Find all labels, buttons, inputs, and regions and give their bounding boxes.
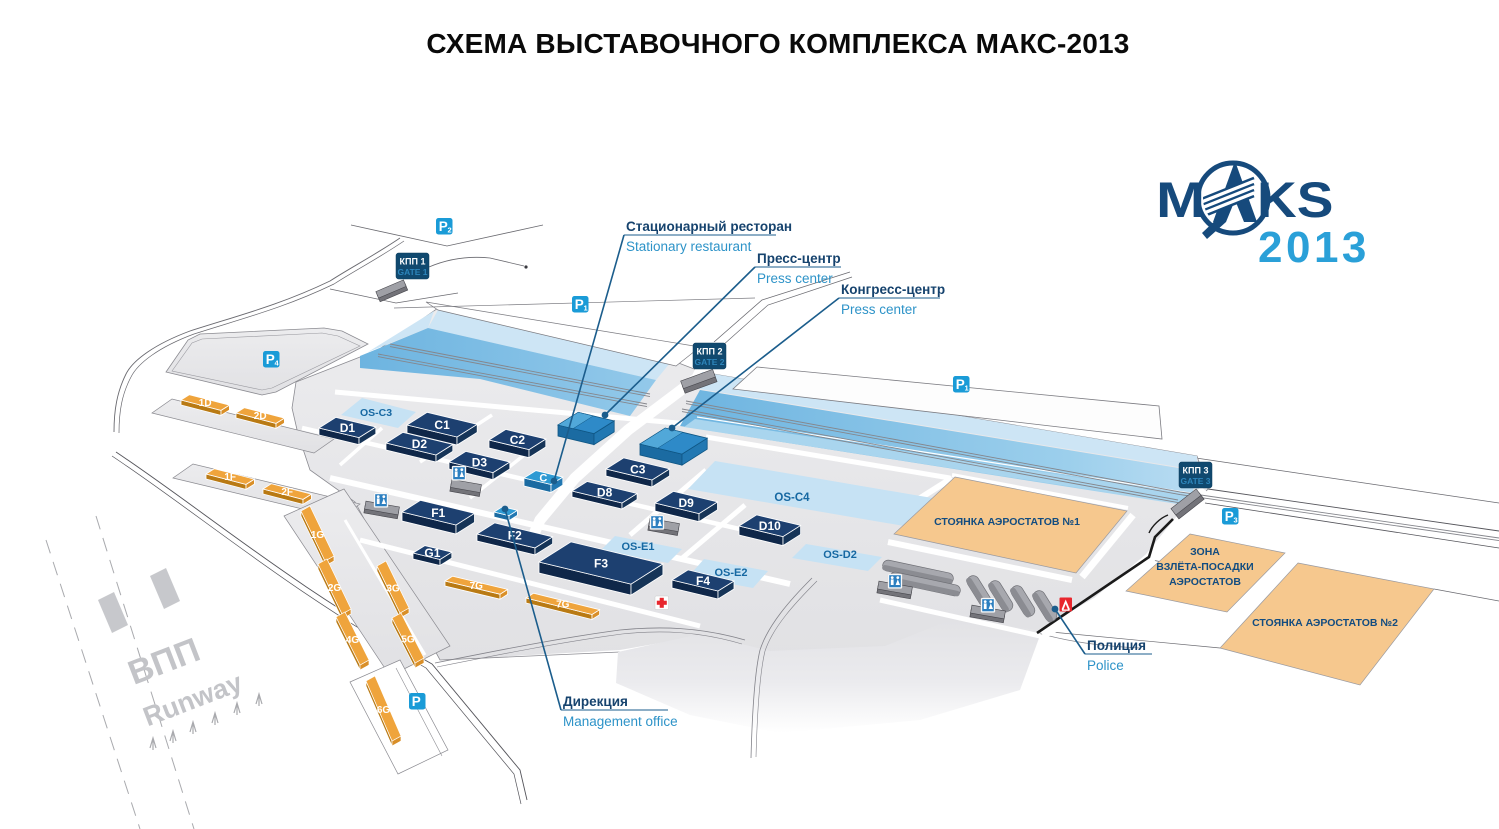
svg-text:СТОЯНКА АЭРОСТАТОВ №2: СТОЯНКА АЭРОСТАТОВ №2	[1252, 617, 1398, 629]
svg-text:GATE 3: GATE 3	[1180, 476, 1210, 486]
svg-text:АЭРОСТАТОВ: АЭРОСТАТОВ	[1169, 576, 1241, 588]
svg-text:C3: C3	[630, 462, 646, 476]
svg-text:D8: D8	[597, 486, 613, 500]
svg-text:M: M	[1156, 171, 1205, 228]
svg-text:СХЕМА ВЫСТАВОЧНОГО КОМПЛЕКСА М: СХЕМА ВЫСТАВОЧНОГО КОМПЛЕКСА МАКС-2013	[426, 28, 1129, 59]
svg-text:2G: 2G	[328, 583, 342, 594]
svg-text:C2: C2	[510, 433, 526, 447]
svg-text:Management office: Management office	[563, 714, 678, 729]
svg-text:1F: 1F	[224, 472, 236, 483]
svg-text:5G: 5G	[401, 635, 415, 646]
svg-text:СТОЯНКА АЭРОСТАТОВ №1: СТОЯНКА АЭРОСТАТОВ №1	[934, 516, 1080, 528]
svg-text:1G: 1G	[311, 530, 325, 541]
svg-text:C: C	[539, 473, 547, 485]
svg-text:P: P	[956, 377, 965, 392]
svg-text:F4: F4	[696, 574, 710, 588]
svg-text:Пресс-центр: Пресс-центр	[757, 251, 841, 266]
svg-text:3G: 3G	[386, 584, 400, 595]
svg-text:ВЗЛЁТА-ПОСАДКИ: ВЗЛЁТА-ПОСАДКИ	[1156, 560, 1253, 573]
svg-text:F1: F1	[431, 506, 445, 520]
svg-text:Полиция: Полиция	[1087, 638, 1146, 653]
svg-text:OS-C3: OS-C3	[360, 407, 392, 419]
svg-text:D3: D3	[472, 455, 488, 469]
svg-text:КПП 1: КПП 1	[400, 257, 426, 267]
svg-text:7G: 7G	[556, 600, 570, 611]
svg-text:КПП 3: КПП 3	[1183, 466, 1209, 476]
svg-text:Stationary restaurant: Stationary restaurant	[626, 239, 752, 254]
svg-text:P: P	[575, 297, 584, 312]
svg-text:D1: D1	[340, 421, 356, 435]
svg-text:G1: G1	[424, 546, 440, 560]
svg-text:P: P	[439, 219, 448, 234]
svg-text:P: P	[412, 694, 421, 709]
svg-text:1: 1	[965, 384, 969, 393]
svg-text:F3: F3	[594, 556, 608, 570]
svg-text:2D: 2D	[254, 411, 267, 422]
svg-text:Стационарный ресторан: Стационарный ресторан	[626, 219, 792, 234]
svg-text:2F: 2F	[281, 487, 293, 498]
svg-text:6G: 6G	[377, 705, 391, 716]
svg-text:P: P	[1225, 509, 1234, 524]
svg-text:Конгресс-центр: Конгресс-центр	[841, 282, 945, 297]
svg-text:1: 1	[584, 304, 588, 313]
svg-text:Press center: Press center	[841, 302, 917, 317]
svg-text:4G: 4G	[346, 635, 360, 646]
svg-text:OS-D2: OS-D2	[823, 549, 857, 561]
svg-text:GATE 1: GATE 1	[397, 267, 427, 277]
svg-text:2013: 2013	[1258, 223, 1370, 272]
svg-text:D10: D10	[759, 519, 781, 533]
svg-text:Press center: Press center	[757, 271, 833, 286]
svg-text:OS-E1: OS-E1	[621, 541, 654, 553]
svg-text:C1: C1	[434, 418, 450, 432]
svg-text:D2: D2	[412, 437, 428, 451]
svg-text:Police: Police	[1087, 658, 1124, 673]
svg-text:OS-C4: OS-C4	[774, 492, 810, 504]
svg-text:KS: KS	[1257, 172, 1333, 228]
svg-text:7G: 7G	[470, 581, 484, 592]
svg-text:F2: F2	[508, 529, 522, 543]
svg-text:2: 2	[448, 226, 452, 235]
svg-text:КПП 2: КПП 2	[697, 347, 723, 357]
svg-text:D9: D9	[679, 496, 695, 510]
svg-text:GATE 2: GATE 2	[694, 357, 724, 367]
svg-text:1D: 1D	[199, 398, 212, 409]
svg-text:Дирекция: Дирекция	[563, 694, 628, 709]
svg-text:P: P	[266, 352, 275, 367]
svg-text:3: 3	[1234, 516, 1238, 525]
svg-text:ЗОНА: ЗОНА	[1190, 546, 1220, 558]
